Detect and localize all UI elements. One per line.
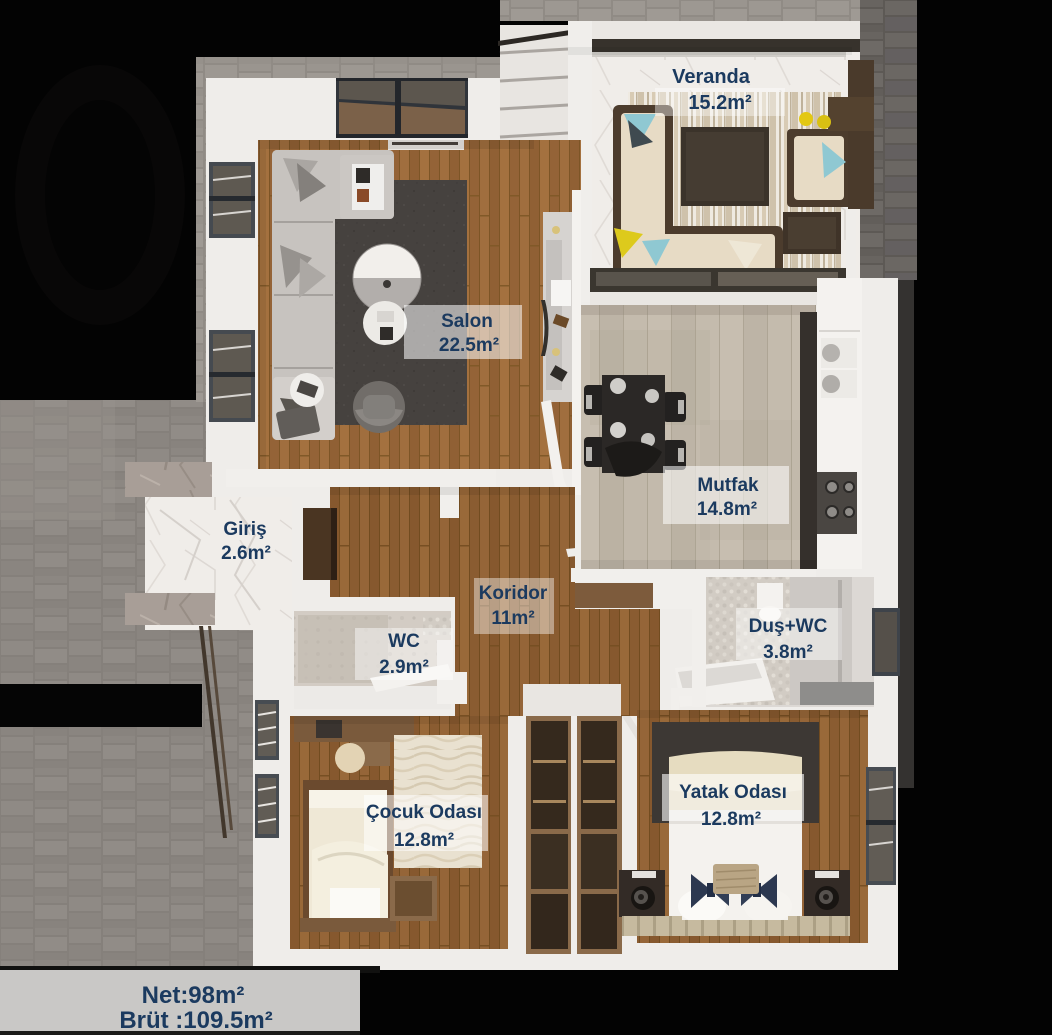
- svg-text:11m²: 11m²: [491, 608, 534, 629]
- svg-text:22.5m²: 22.5m²: [439, 335, 499, 356]
- svg-text:Net:98m²: Net:98m²: [142, 982, 245, 1009]
- svg-text:Salon: Salon: [441, 311, 493, 332]
- svg-text:14.8m²: 14.8m²: [697, 499, 757, 520]
- svg-text:3.8m²: 3.8m²: [763, 642, 813, 663]
- svg-text:Duş+WC: Duş+WC: [749, 616, 828, 637]
- svg-text:15.2m²: 15.2m²: [688, 92, 752, 114]
- svg-text:Koridor: Koridor: [479, 583, 548, 604]
- svg-text:Brüt :109.5m²: Brüt :109.5m²: [119, 1007, 272, 1034]
- svg-text:Yatak Odası: Yatak Odası: [679, 782, 787, 803]
- svg-text:Çocuk Odası: Çocuk Odası: [366, 802, 482, 823]
- svg-text:12.8m²: 12.8m²: [394, 830, 454, 851]
- svg-text:2.9m²: 2.9m²: [379, 657, 429, 678]
- svg-text:Veranda: Veranda: [672, 66, 751, 88]
- svg-text:Giriş: Giriş: [223, 519, 266, 540]
- svg-text:WC: WC: [388, 631, 420, 652]
- svg-text:Mutfak: Mutfak: [697, 475, 759, 496]
- svg-text:2.6m²: 2.6m²: [221, 543, 271, 564]
- svg-text:12.8m²: 12.8m²: [701, 809, 761, 830]
